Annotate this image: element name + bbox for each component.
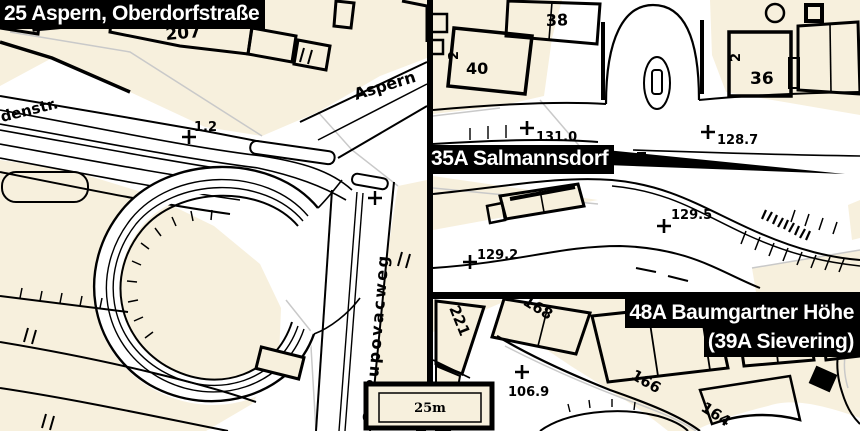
panel-title-aspern: 25 Aspern, Oberdorfstraße xyxy=(0,0,265,29)
elevation-value: 129.2 xyxy=(477,248,518,263)
scale-bar: 25m xyxy=(366,384,492,428)
panel-title-baumgartner-line1: 48A Baumgartner Höhe xyxy=(625,299,860,328)
building-number-36: 36 xyxy=(750,69,774,89)
map-canvas: 205 207 denstr. Aspern O. Pupovacweg 1.2 xyxy=(0,0,860,431)
elevation-value: 106.9 xyxy=(508,385,549,400)
scale-bar-label: 25m xyxy=(414,401,446,416)
elevation-value: 129.5 xyxy=(671,208,712,223)
panel-aspern-map: 205 207 denstr. Aspern O. Pupovacweg 1.2 xyxy=(0,0,431,431)
building-number-40: 40 xyxy=(466,59,488,78)
vertical-divider xyxy=(427,0,433,390)
building-number-40-annex: 2 xyxy=(447,51,462,60)
elevation-value: 1.2 xyxy=(194,120,217,135)
building-number-36-annex: 2 xyxy=(729,53,744,62)
horizontal-divider xyxy=(427,292,860,299)
elevation-value: 128.7 xyxy=(717,133,758,148)
panel-title-baumgartner-line2: (39A Sievering) xyxy=(704,328,860,357)
map-screenshot: 205 207 denstr. Aspern O. Pupovacweg 1.2 xyxy=(0,0,860,431)
panel-title-salmannsdorf: 35A Salmannsdorf xyxy=(427,145,614,174)
building-number-38: 38 xyxy=(545,10,568,30)
elevation-value: 131.0 xyxy=(536,130,577,145)
